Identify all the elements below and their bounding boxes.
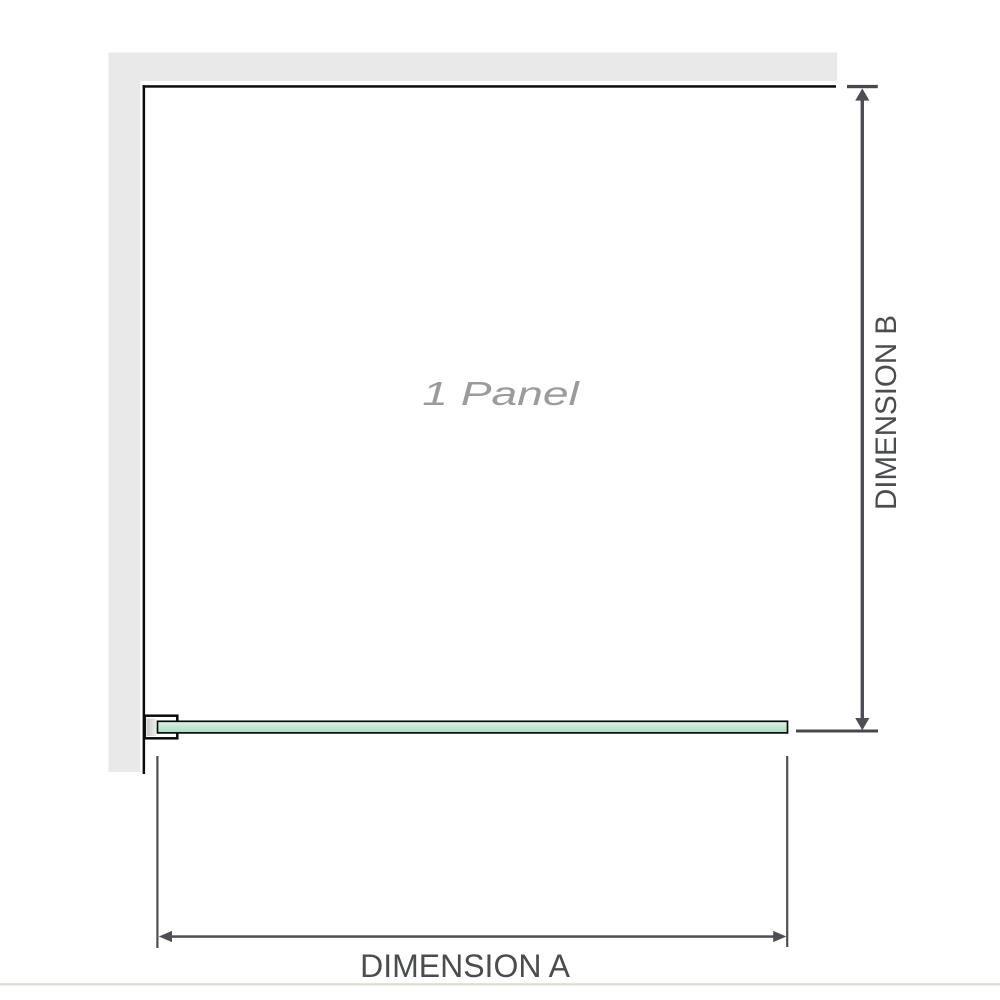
svg-text:DIMENSION A: DIMENSION A — [360, 948, 570, 984]
svg-text:1 Panel: 1 Panel — [422, 375, 580, 412]
svg-text:DIMENSION B: DIMENSION B — [870, 315, 903, 510]
